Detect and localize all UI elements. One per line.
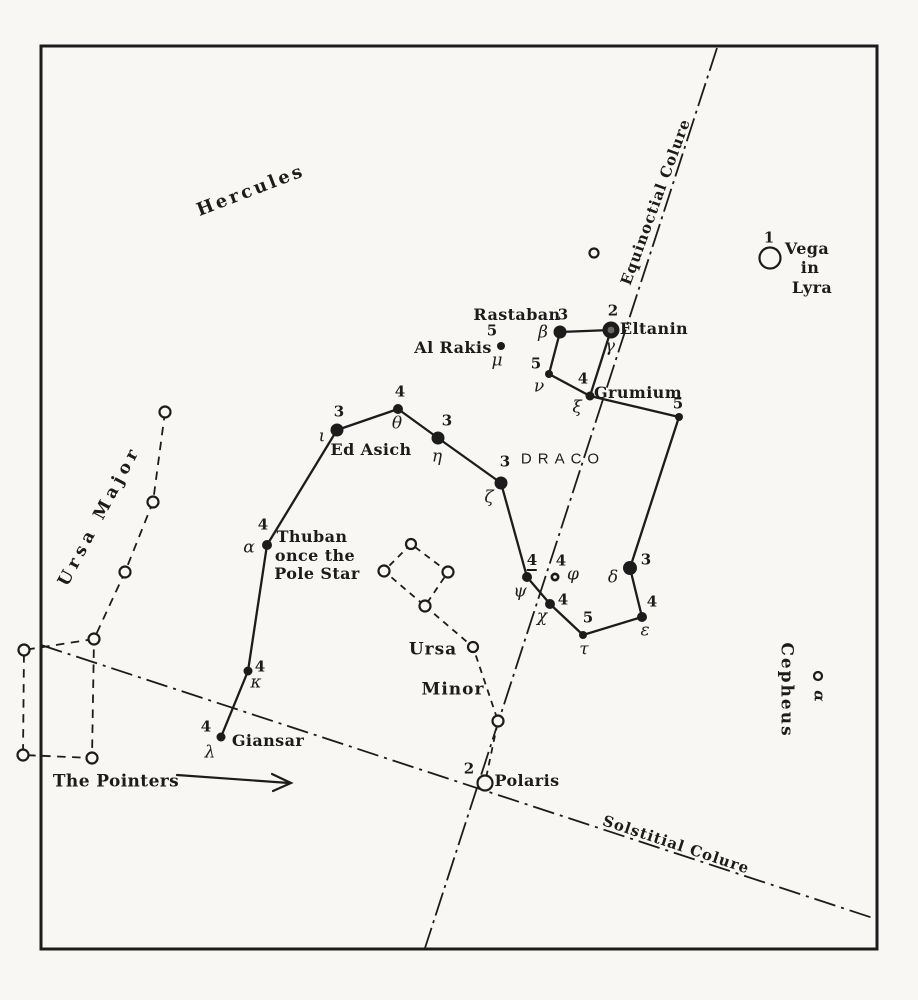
star-psi	[522, 572, 532, 582]
vega-name-line2: in	[801, 260, 820, 276]
gamma-greek: γ	[605, 339, 615, 356]
polaris-magnitude: 2	[464, 762, 474, 777]
umi-bowl-star-3	[443, 567, 454, 578]
giansar-name: Giansar	[232, 733, 304, 749]
uma-chain-star-1	[160, 407, 171, 418]
beta-greek: β	[538, 325, 548, 342]
lambda-magnitude: 4	[201, 720, 211, 735]
eltanin-name: Eltanin	[620, 321, 688, 337]
star-lambda-giansar	[217, 733, 226, 742]
thuban-name-line2: once the	[275, 548, 355, 564]
star-hercules-small	[590, 249, 599, 258]
beta-magnitude: 3	[558, 308, 568, 323]
star-gamma-eltanin-texture	[608, 327, 615, 334]
star-node-mag5	[675, 413, 683, 421]
vega-name-line1: Vega	[785, 241, 829, 257]
alpha-greek: α	[243, 540, 254, 557]
chi-magnitude: 4	[558, 593, 568, 608]
vega-name-line3: Lyra	[792, 280, 832, 296]
map-frame-border	[41, 46, 877, 949]
xi-magnitude: 4	[578, 372, 588, 387]
mu-greek: μ	[491, 353, 502, 370]
star-phi-center	[553, 575, 557, 579]
constellation-label-ursa-minor-line2: Minor	[422, 682, 485, 699]
iota-magnitude: 3	[334, 405, 344, 420]
pointer-star-merak	[87, 753, 98, 764]
chi-greek: χ	[537, 609, 547, 626]
star-delta	[623, 561, 637, 575]
thuban-name-line1: Thuban	[277, 529, 348, 545]
star-eta	[432, 432, 445, 445]
star-iota-ed-asich	[331, 424, 344, 437]
uma-bowl-star-2	[18, 750, 29, 761]
polaris-name: Polaris	[494, 773, 559, 789]
uma-chain-star-2	[148, 497, 159, 508]
star-mu-al-rakis	[497, 342, 505, 350]
star-vega	[760, 248, 781, 269]
eta-greek: η	[432, 449, 442, 466]
constellation-label-ursa-minor-line1: Ursa	[409, 642, 457, 659]
nu-magnitude: 5	[531, 357, 541, 372]
the-pointers-label: The Pointers	[53, 774, 179, 791]
constellation-label-cepheus: Cepheus	[778, 642, 795, 737]
grumium-name: Grumium	[594, 385, 682, 401]
al-rakis-name: Al Rakis	[414, 340, 491, 356]
epsilon-magnitude: 4	[647, 595, 657, 610]
uma-chain-star-3	[120, 567, 131, 578]
ed-asich-name: Ed Asich	[330, 442, 411, 458]
constellation-chart-page: Hercules DRACO Ursa Major Ursa Minor Cep…	[0, 0, 918, 1000]
pointer-star-dubhe	[89, 634, 100, 645]
tau-greek: τ	[579, 642, 588, 659]
uma-bowl-star-1	[19, 645, 30, 656]
zeta-magnitude: 3	[500, 455, 510, 470]
delta-magnitude: 3	[641, 553, 651, 568]
psi-magnitude: 4	[527, 553, 537, 571]
theta-greek: θ	[392, 416, 402, 433]
umi-tail-star-1	[468, 642, 478, 652]
vega-magnitude: 1	[764, 231, 774, 246]
tau-magnitude: 5	[583, 611, 593, 626]
umi-bowl-star-2	[379, 566, 390, 577]
ursa-minor-lines	[384, 544, 498, 783]
nu-greek: ν	[534, 379, 544, 396]
lambda-greek: λ	[205, 745, 216, 762]
thuban-name-line3: Pole Star	[274, 566, 359, 582]
equinoctial-colure-line	[425, 48, 717, 948]
ursa-major-lines	[23, 412, 165, 758]
xi-greek: ξ	[572, 400, 581, 417]
star-zeta	[495, 477, 508, 490]
star-alpha-thuban	[262, 540, 272, 550]
kappa-greek: κ	[250, 675, 261, 692]
eta-magnitude: 3	[442, 414, 452, 429]
umi-tail-star-2	[493, 716, 504, 727]
phi-greek: φ	[567, 567, 579, 584]
theta-magnitude: 4	[395, 385, 405, 400]
open-circle-stars	[18, 248, 823, 791]
alpha-magnitude: 4	[258, 518, 268, 533]
star-polaris	[478, 776, 493, 791]
umi-bowl-star-1	[406, 539, 416, 549]
constellation-label-draco: DRACO	[521, 452, 605, 467]
iota-greek: ι	[319, 429, 326, 446]
umi-bowl-star-4	[420, 601, 431, 612]
delta-greek: δ	[608, 570, 618, 587]
epsilon-greek: ε	[640, 623, 649, 640]
alpha-cephei-greek-label: α	[812, 690, 827, 702]
star-beta-rastaban	[554, 326, 567, 339]
star-theta	[393, 404, 403, 414]
psi-greek: ψ	[513, 584, 526, 601]
zeta-greek: ζ	[484, 490, 493, 507]
star-alpha-cephei	[814, 672, 822, 680]
pointers-arrow	[177, 774, 291, 791]
star-nu	[545, 370, 553, 378]
chart-canvas	[0, 0, 918, 1000]
mu-magnitude: 5	[487, 324, 497, 339]
star-tau	[579, 631, 587, 639]
phi-magnitude: 4	[556, 554, 566, 569]
gamma-magnitude: 2	[608, 304, 618, 319]
